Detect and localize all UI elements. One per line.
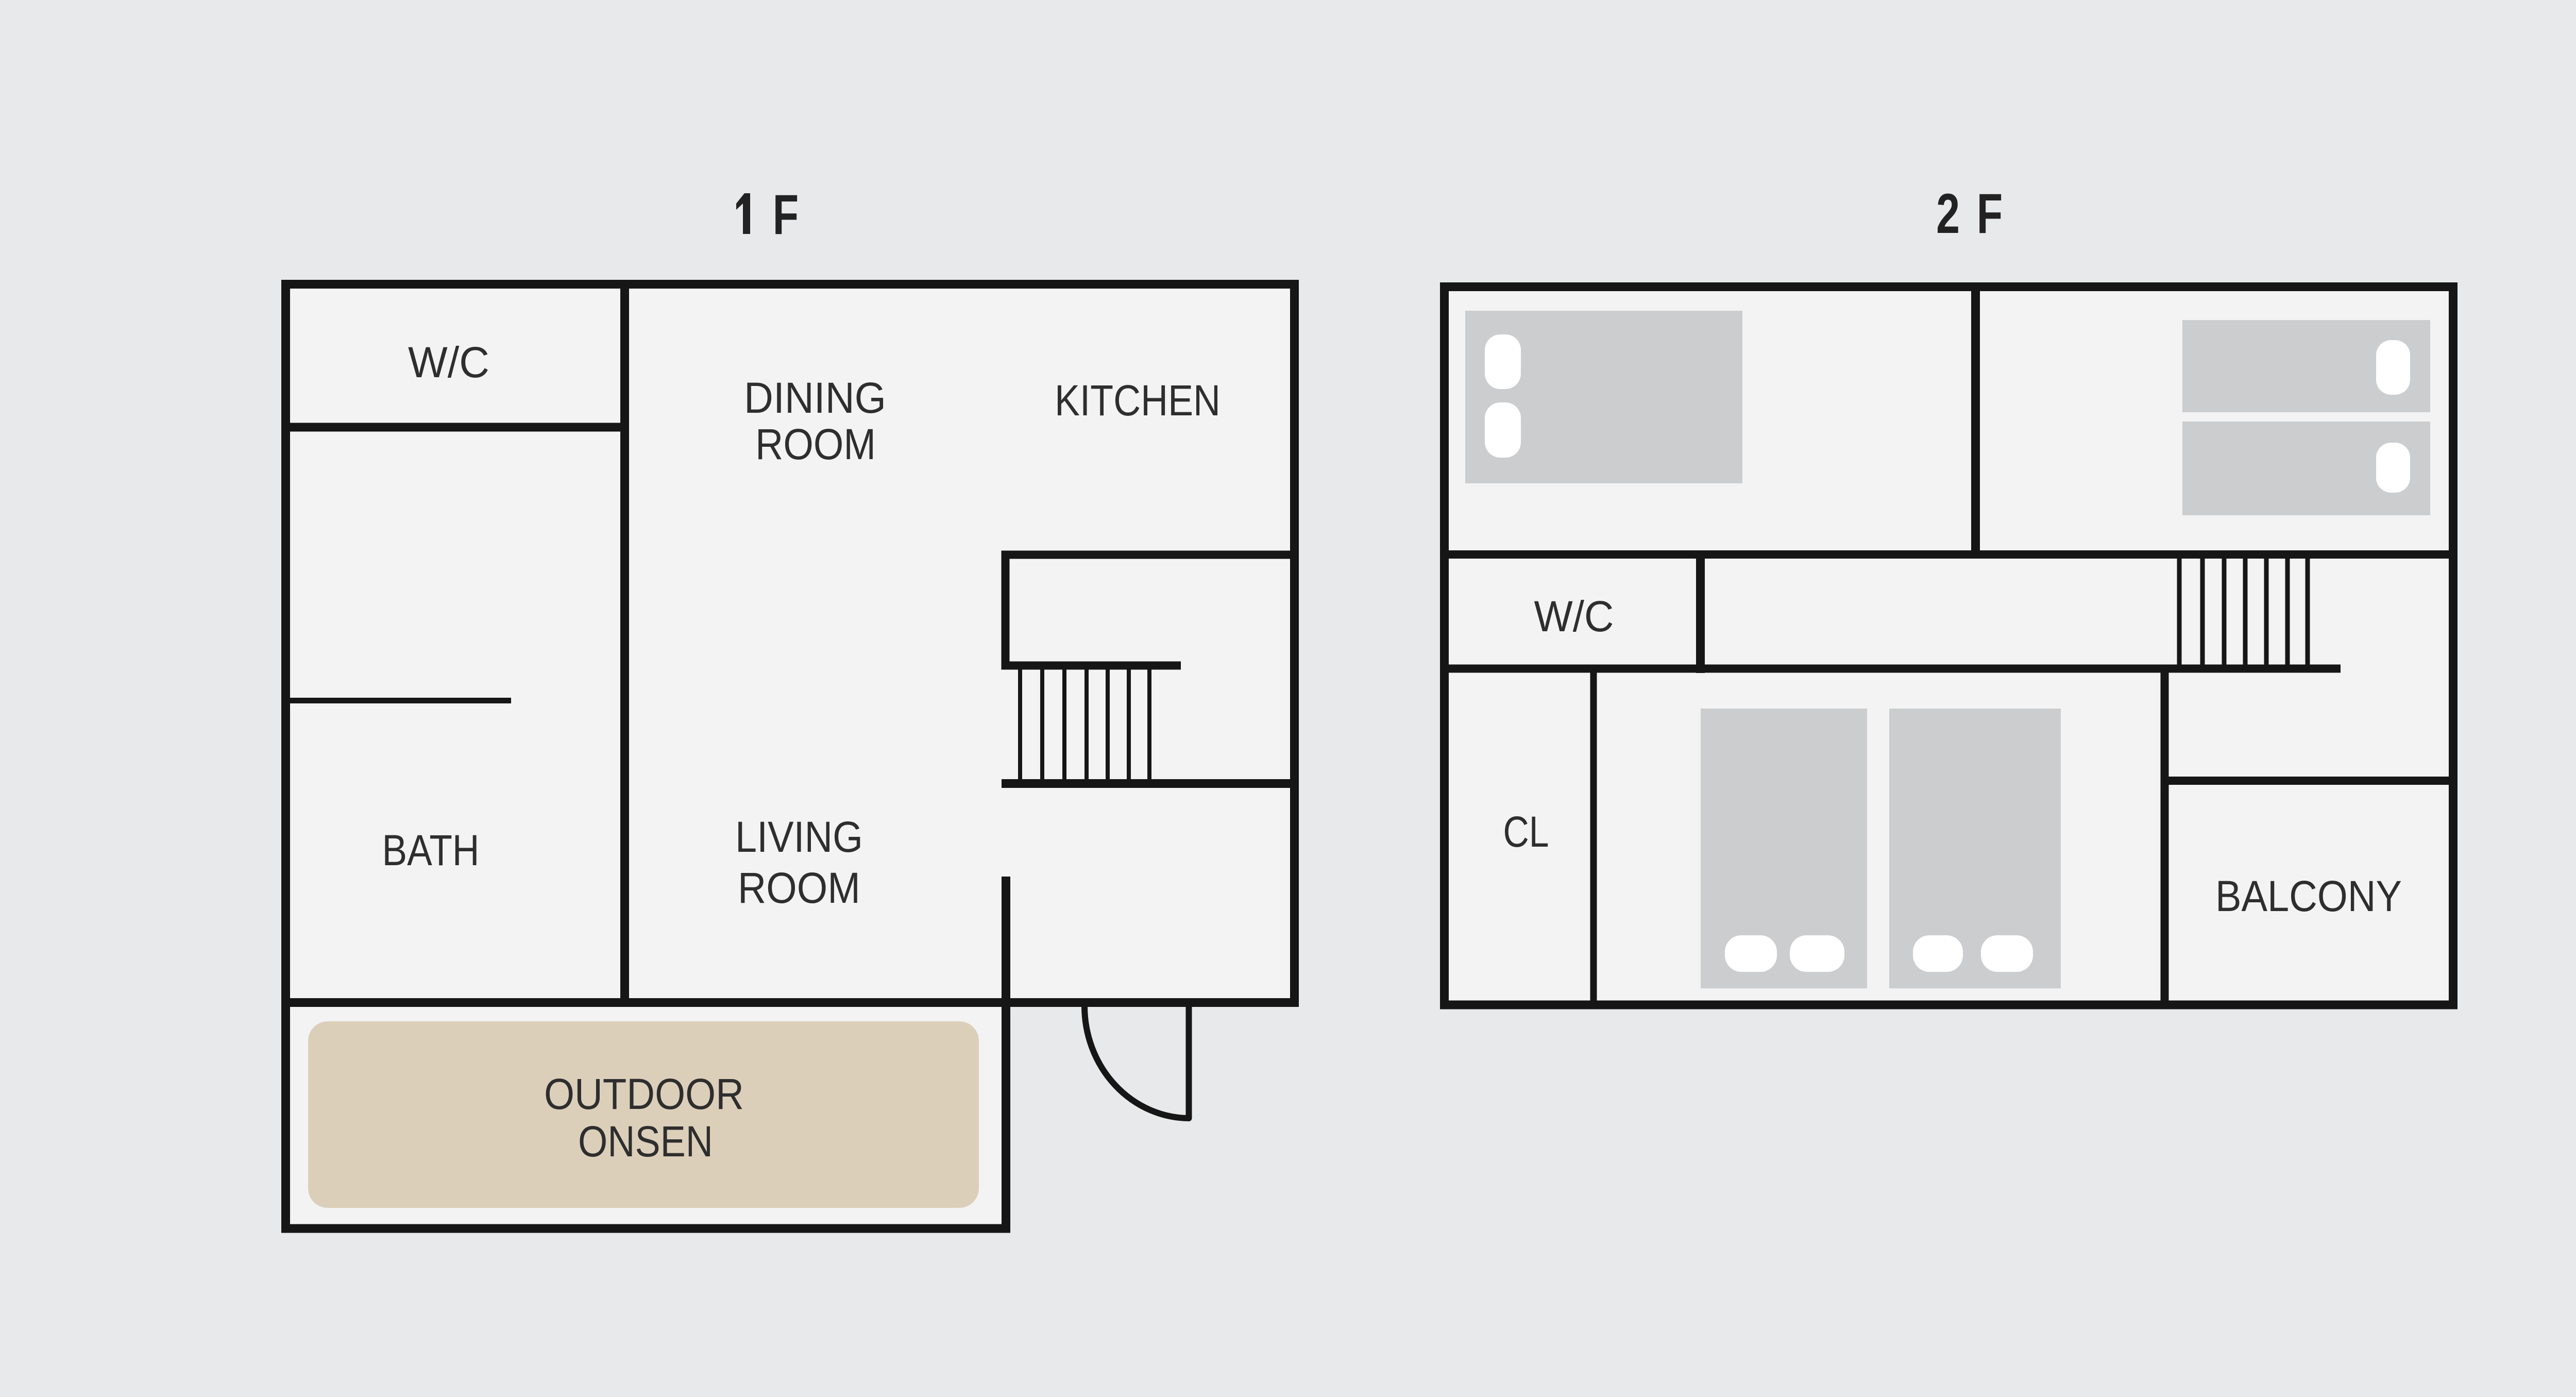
svg-text:F: F (1977, 181, 2003, 245)
svg-text:W/C: W/C (1534, 592, 1614, 641)
svg-text:CL: CL (1503, 807, 1549, 856)
svg-text:DINING: DINING (744, 374, 886, 422)
svg-text:ROOM: ROOM (738, 864, 860, 912)
svg-text:F: F (773, 182, 799, 246)
svg-text:OUTDOOR: OUTDOOR (544, 1070, 744, 1118)
svg-text:ONSEN: ONSEN (578, 1117, 713, 1166)
svg-text:LIVING: LIVING (735, 813, 863, 861)
svg-text:BALCONY: BALCONY (2215, 872, 2402, 920)
svg-text:ROOM: ROOM (755, 420, 876, 468)
svg-text:KITCHEN: KITCHEN (1055, 376, 1221, 425)
svg-text:2: 2 (1936, 181, 1960, 245)
svg-text:W/C: W/C (408, 338, 489, 386)
svg-text:BATH: BATH (382, 826, 480, 874)
